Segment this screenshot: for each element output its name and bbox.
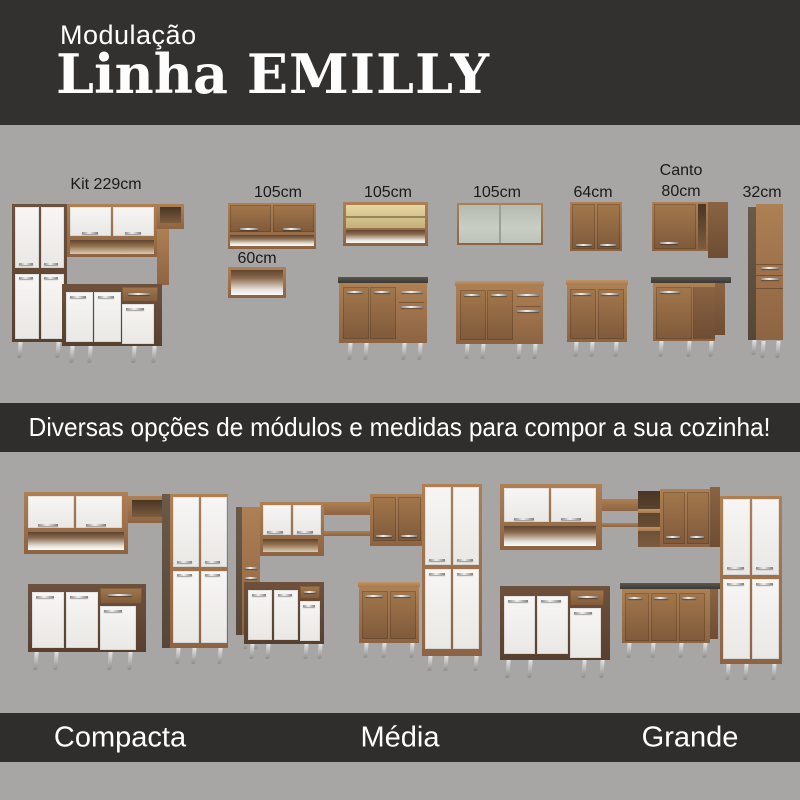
door-handle [457,573,473,575]
module-niche-60 [228,267,286,298]
door-handle [297,531,313,533]
wood-side-panel [708,202,728,258]
cabinet-foot [658,341,663,357]
wood-door [598,289,624,339]
white-door [66,592,98,648]
option-label-compacta: Compacta [54,721,186,754]
cabinet-foot [409,643,414,658]
open-niche [263,539,318,552]
door-handle [727,567,744,569]
door-handle [128,293,150,295]
white-door [32,592,64,648]
white-door [94,292,121,342]
cabinet-foot [249,644,254,659]
cabinet-foot [464,344,469,359]
cabinet-foot [527,660,532,678]
cabinet-foot [516,344,521,359]
module-base-canto-80 [651,277,731,357]
cabinet-foot [678,643,683,658]
cabinet-foot [613,342,618,357]
door-handle [401,291,423,293]
door-handle [104,610,122,612]
panel-seam [399,302,424,303]
kitchen-media [234,481,484,677]
door-handle [98,296,114,298]
door-handle [761,278,779,280]
white-door [425,569,451,649]
door-handle [756,567,773,569]
white-door [453,487,479,565]
white-door [41,207,64,268]
door-handle [376,535,392,537]
white-door [570,608,601,658]
module-base-105-counter [338,277,428,361]
cabinet-foot [151,346,156,363]
door-handle [401,535,417,537]
module-label-canto-80: Canto 80cm [660,160,703,202]
wood-door [572,204,595,249]
cabinet-foot [303,644,308,659]
wood-side-panel [710,589,718,639]
option-label-media: Média [361,721,440,754]
white-door [453,569,479,649]
white-door [122,304,154,344]
white-door [752,579,779,659]
door-handle [82,232,98,234]
module-wall-64 [570,202,622,251]
white-door [173,571,199,643]
cabinet-foot [69,346,74,363]
kitchen-compacta [20,487,230,685]
shelf-line [346,216,425,218]
door-handle [374,291,390,293]
cabinet-foot [55,342,60,358]
door-handle [573,293,591,295]
module-label-wall-64: 64cm [573,182,612,203]
door-handle [240,228,258,230]
door-handle [457,559,473,561]
cabinet-foot [401,343,406,360]
header: Modulação Linha EMILLY [0,0,800,125]
wood-edge [638,527,660,531]
cabinet-foot [347,343,352,360]
cabinet-foot [760,341,765,358]
wood-door [370,287,396,339]
door-handle [205,574,220,576]
module-wall-105-open [343,202,428,246]
door-handle [86,524,106,526]
wood-side-panel [710,487,720,547]
title-name: EMILLY [247,42,490,106]
white-door [504,488,549,522]
wood-door [625,593,649,641]
wood-door [651,593,677,641]
door-handle [205,561,220,563]
door-handle [517,310,539,312]
cabinet-foot [33,652,38,670]
module-label-niche-60: 60cm [237,248,276,269]
door-handle [514,518,534,520]
catalog-page: Modulação Linha EMILLY Kit 229cm 105cm 1… [0,0,800,800]
panel-seam [756,288,783,289]
door-handle [690,536,704,538]
wood-side-panel [715,283,725,335]
door-handle [365,595,383,597]
door-handle [304,591,316,593]
cabinet-foot [589,342,594,357]
wood-door [390,591,416,639]
white-door [723,579,750,659]
option-label-grande: Grande [642,721,739,754]
door-handle [252,594,266,596]
shelf-interior [698,204,706,249]
door-handle [601,293,619,295]
door-handle [756,583,773,585]
side-panel [748,207,756,340]
open-niche [504,526,596,546]
cabinet-foot [87,346,92,363]
cabinet-foot [686,341,691,357]
door-handle [245,577,257,579]
door-handle [70,596,88,598]
shelf-interior [160,207,181,223]
door-handle [628,597,642,599]
cabinet-foot [107,652,112,670]
door-handle [600,244,616,246]
door-handle [491,294,507,296]
module-wall-105-doors [228,203,316,249]
cabinet-foot [708,341,713,357]
cabinet-foot [443,656,448,671]
door-handle [541,600,561,602]
door-handle [126,308,144,310]
cabinet-foot [127,652,132,670]
cabinet-foot [473,656,478,671]
module-kit-229 [12,204,184,364]
promo-banner: Diversas opções de módulos e medidas par… [0,403,800,452]
cabinet-foot [581,660,586,678]
door-handle [108,594,132,596]
module-label-glass-105: 105cm [473,182,521,203]
cabinet-foot [53,652,58,670]
cabinet-foot [317,644,322,659]
canto-label-line2: 80cm [660,181,703,202]
door-handle [44,277,58,279]
wood-door [570,289,596,339]
white-door [15,207,39,268]
wood-door [362,591,388,639]
page-title: Linha EMILLY [56,42,490,106]
cabinet-foot [417,343,422,360]
white-door [201,571,227,643]
door-handle [278,594,292,596]
door-handle [245,567,257,569]
wood-side-panel [694,287,715,339]
cabinet-foot [573,342,578,357]
module-label-tall-32: 32cm [742,182,781,203]
white-door [248,590,272,640]
door-handle [401,306,423,308]
module-base-105 [455,281,544,359]
module-label-wall-105: 105cm [254,182,302,203]
door-handle [429,559,445,561]
door-handle [177,574,192,576]
module-label-kit-229: Kit 229cm [70,174,141,195]
door-handle [347,291,363,293]
wood-door [679,593,705,641]
door-handle [38,524,58,526]
cabinet-foot [505,660,510,678]
cabinet-foot [725,664,730,680]
white-door [15,274,39,339]
shelf-interior [638,491,660,547]
wood-panel [324,531,370,536]
panel-seam [756,264,783,265]
door-handle [682,597,696,599]
promo-banner-text: Diversas opções de módulos e medidas par… [29,412,771,443]
cabinet-foot [702,643,707,658]
cabinet-foot [17,342,22,358]
white-door [723,499,750,575]
cabinet-foot [771,664,776,680]
cabinet-foot [175,648,180,664]
cabinet-foot [427,656,432,671]
cabinet-foot [363,643,368,658]
cabinet-foot [217,648,222,664]
door-handle [660,291,680,293]
panel-seam [756,275,783,276]
door-handle [283,228,301,230]
white-door [752,499,779,575]
white-door [173,497,199,567]
door-handle [36,596,54,598]
cabinet-foot [131,346,136,363]
door-handle [561,518,581,520]
module-wall-canto-80 [652,202,728,258]
open-niche [231,270,283,295]
door-handle [578,596,598,598]
side-panel [162,494,170,648]
wood-edge [638,509,660,513]
module-wall-105-glass [457,203,543,245]
door-handle [727,583,744,585]
door-handle [19,263,33,265]
cabinet-foot [265,644,270,659]
white-door [300,601,320,641]
glass-divider [499,205,501,243]
wood-panel [157,229,169,285]
door-handle [464,294,480,296]
cabinet-foot [775,341,780,358]
cabinet-foot [751,340,756,355]
door-handle [429,573,445,575]
door-handle [654,597,668,599]
module-base-64 [566,280,628,356]
wood-panel [756,204,783,340]
white-door [551,488,596,522]
door-handle [508,600,528,602]
wood-door [343,287,369,339]
wood-panel [324,502,370,515]
white-door [100,606,136,650]
cabinet-foot [650,643,655,658]
module-label-open-105: 105cm [364,182,412,203]
cabinet-foot [743,664,748,680]
wood-door [656,287,692,339]
white-door [66,292,93,342]
white-door [41,274,64,339]
white-door [274,590,298,640]
open-niche [230,235,314,246]
wood-door [487,290,513,340]
white-door [425,487,451,565]
open-niche [346,230,425,243]
module-tall-32 [748,204,783,357]
door-handle [574,612,592,614]
door-handle [44,263,58,265]
footer-bar: Compacta Média Grande [0,713,800,762]
canto-label-line1: Canto [660,160,703,181]
door-handle [393,595,411,597]
cabinet-foot [381,643,386,658]
door-handle [267,531,283,533]
kitchen-grande [497,479,789,685]
cabinet-foot [626,643,631,658]
door-handle [177,561,192,563]
cabinet-foot [191,648,196,664]
wood-door [460,290,486,340]
door-handle [761,267,779,269]
door-handle [19,277,33,279]
door-handle [125,232,141,234]
door-handle [303,605,315,607]
wood-door [570,590,604,606]
cabinet-foot [599,660,604,678]
panel-seam [516,306,541,307]
white-door [504,596,535,654]
cabinet-foot [480,344,485,359]
open-niche [28,532,124,550]
wood-door [100,588,142,604]
door-handle [70,296,86,298]
open-niche [70,240,154,254]
door-handle [517,294,539,296]
door-handle [660,242,678,244]
door-handle [576,244,592,246]
title-prefix: Linha [56,42,228,106]
door-handle [666,536,680,538]
white-door [537,596,568,654]
wood-door [597,204,620,249]
cabinet-foot [532,344,537,359]
cabinet-foot [363,343,368,360]
white-door [201,497,227,567]
